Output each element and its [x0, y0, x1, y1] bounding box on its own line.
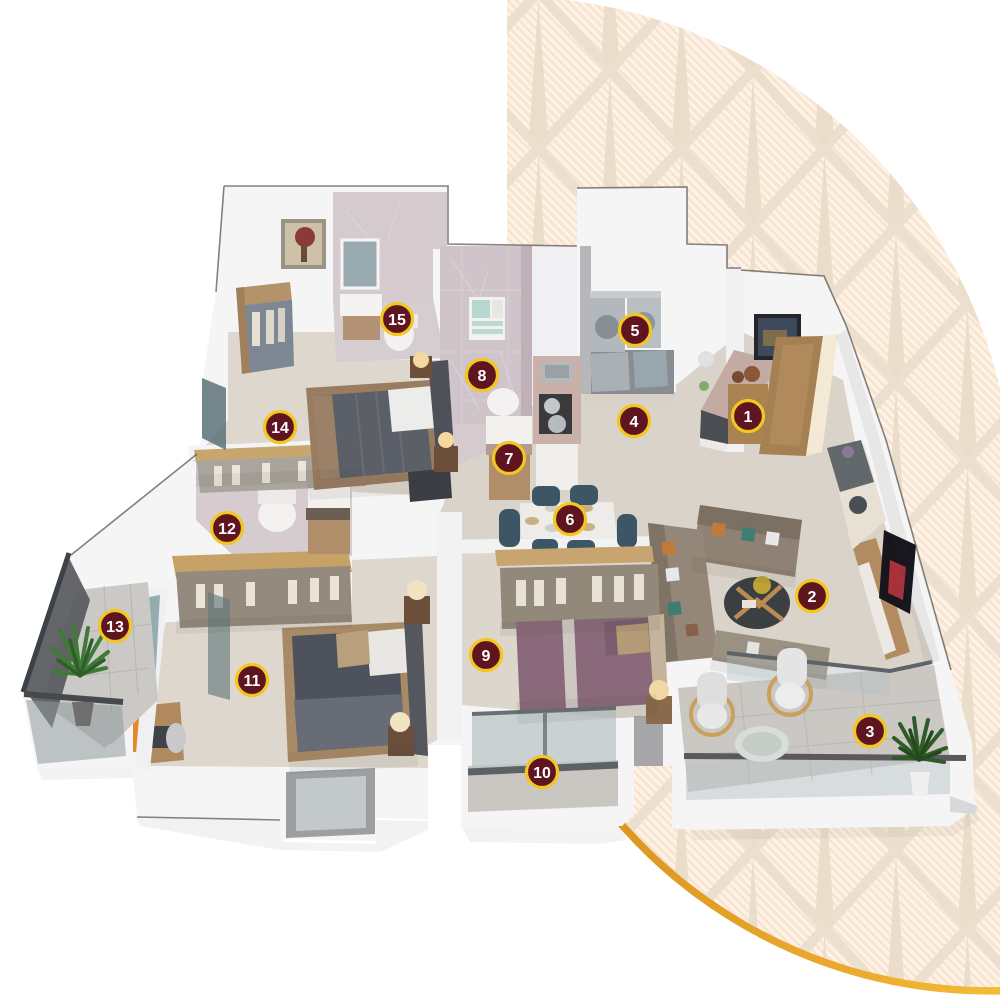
- svg-text:7: 7: [505, 451, 514, 468]
- svg-text:8: 8: [478, 368, 487, 385]
- svg-text:13: 13: [106, 619, 124, 636]
- svg-text:1: 1: [744, 409, 753, 426]
- svg-text:4: 4: [630, 414, 639, 431]
- svg-text:11: 11: [244, 673, 261, 690]
- svg-text:12: 12: [218, 521, 236, 538]
- svg-text:9: 9: [482, 648, 491, 665]
- svg-text:5: 5: [631, 323, 640, 340]
- svg-text:14: 14: [271, 420, 289, 437]
- svg-text:10: 10: [533, 765, 551, 782]
- svg-text:2: 2: [808, 589, 817, 606]
- svg-text:3: 3: [866, 724, 875, 741]
- svg-text:15: 15: [388, 312, 406, 329]
- svg-text:6: 6: [566, 512, 575, 529]
